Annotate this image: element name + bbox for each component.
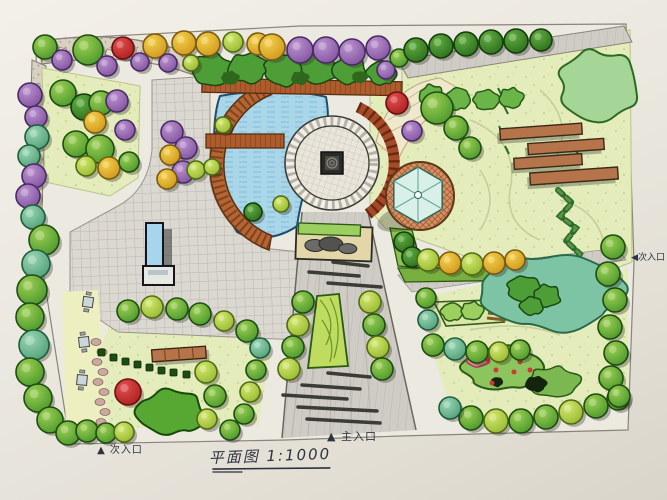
rock-garden bbox=[295, 223, 372, 262]
central-feature bbox=[321, 152, 343, 174]
flower-dot bbox=[494, 368, 499, 373]
tree-green bbox=[16, 303, 47, 334]
side-entrance-bottom-label: ▲ 次入口 bbox=[97, 443, 143, 456]
main-entrance-label: ▲ 主入口 bbox=[327, 430, 377, 443]
flower-dot bbox=[512, 370, 517, 375]
landscape-plan-page: ▲ 主入口 ▲ 次入口 ◀次入口 平面图 1:1000 bbox=[0, 0, 667, 500]
circular-plaza bbox=[285, 116, 379, 210]
water-feature bbox=[143, 223, 174, 285]
tree-teal bbox=[19, 330, 52, 363]
landscape-plan-drawing: ▲ 主入口 ▲ 次入口 ◀次入口 平面图 1:1000 bbox=[0, 0, 667, 500]
side-entrance-right-label: ◀次入口 bbox=[631, 251, 665, 263]
title-block: 平面图 1:1000 bbox=[208, 445, 331, 473]
plan-title: 平面图 1:1000 bbox=[208, 445, 331, 467]
flower-dot bbox=[528, 368, 533, 373]
flower-dot bbox=[490, 381, 495, 386]
